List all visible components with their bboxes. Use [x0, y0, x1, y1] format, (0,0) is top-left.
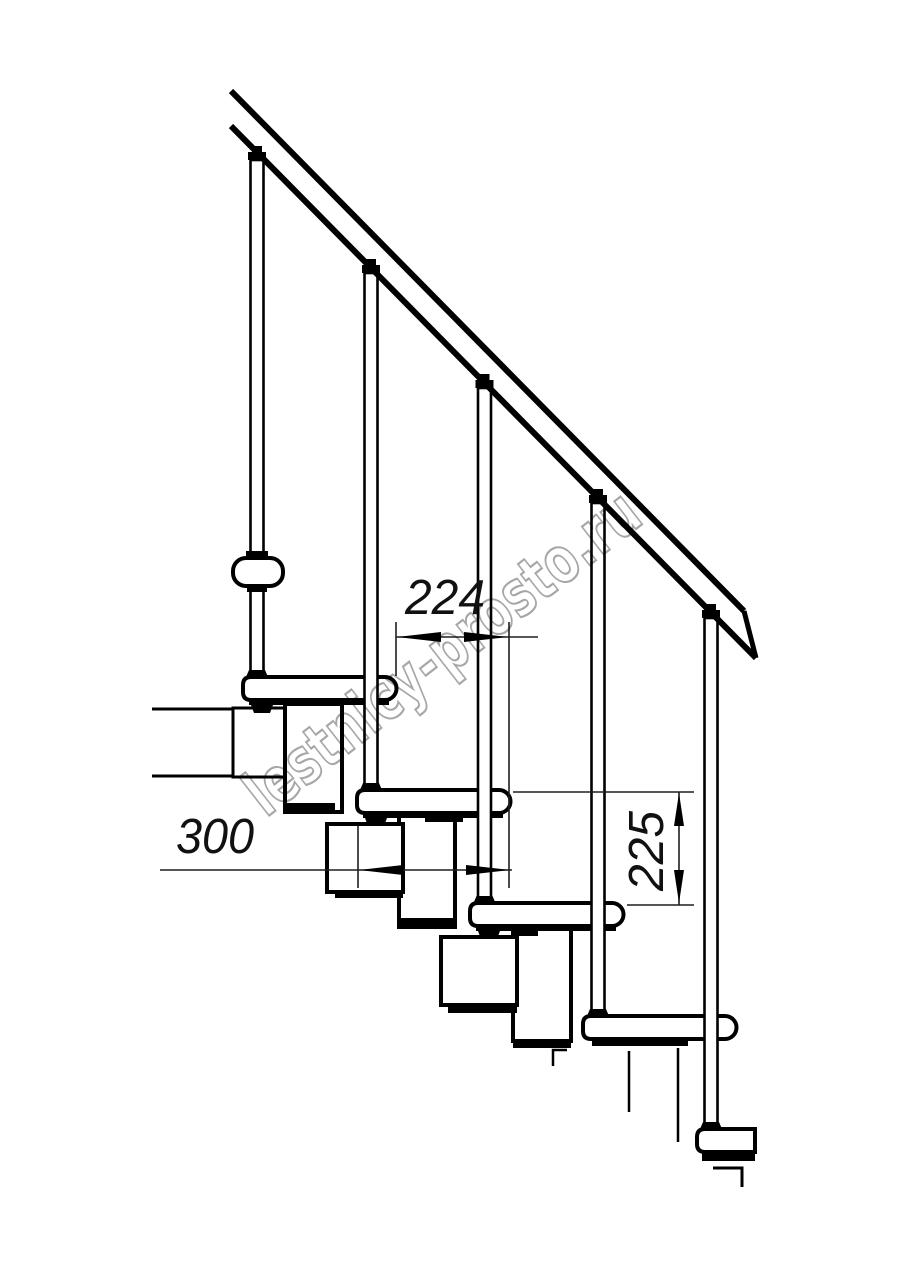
tread-2-bolt: [365, 818, 387, 826]
baluster-4-bottom-connector: [587, 1009, 609, 1016]
module-box-2: [327, 824, 403, 892]
staircase-drawing: 224 300 225 lestnicy-prosto.ru: [0, 0, 914, 1280]
tread-5-band: [702, 1150, 755, 1161]
module-box-4-corner: [553, 1050, 567, 1066]
tread-1-bolt: [251, 705, 273, 713]
dim-label-225: 225: [620, 810, 674, 892]
module-box-2-foot: [335, 890, 403, 898]
module-tube-3-foot: [513, 1039, 571, 1048]
baluster-1: [251, 160, 264, 677]
baluster-1-bottom-connector: [246, 670, 268, 677]
dim-label-300: 300: [176, 810, 254, 864]
baluster-5-bottom-connector: [700, 1122, 722, 1129]
module-box-5-corner: [713, 1168, 742, 1187]
module-box-3-foot: [448, 1005, 517, 1013]
support-modules: [285, 704, 742, 1187]
baluster-5: [705, 618, 718, 1129]
tread-3-bolt-b: [514, 928, 538, 936]
arrow-225-down: [674, 870, 684, 903]
module-tube-2-foot: [399, 918, 455, 927]
module-tube-3: [513, 929, 571, 1041]
baluster-2-bottom-connector: [360, 783, 382, 790]
tread-3-bolt: [478, 931, 500, 939]
baluster-1-clamp: [233, 558, 283, 586]
tread-4-band: [592, 1037, 688, 1046]
tread-5: [697, 1129, 755, 1152]
module-box-3: [441, 937, 517, 1005]
tread-2-bolt-b: [425, 815, 463, 822]
arrow-225-up: [674, 793, 684, 826]
module-tube-2: [399, 816, 455, 927]
clamp-bottom-tab: [247, 585, 267, 592]
baluster-3-bottom-connector: [474, 896, 496, 903]
